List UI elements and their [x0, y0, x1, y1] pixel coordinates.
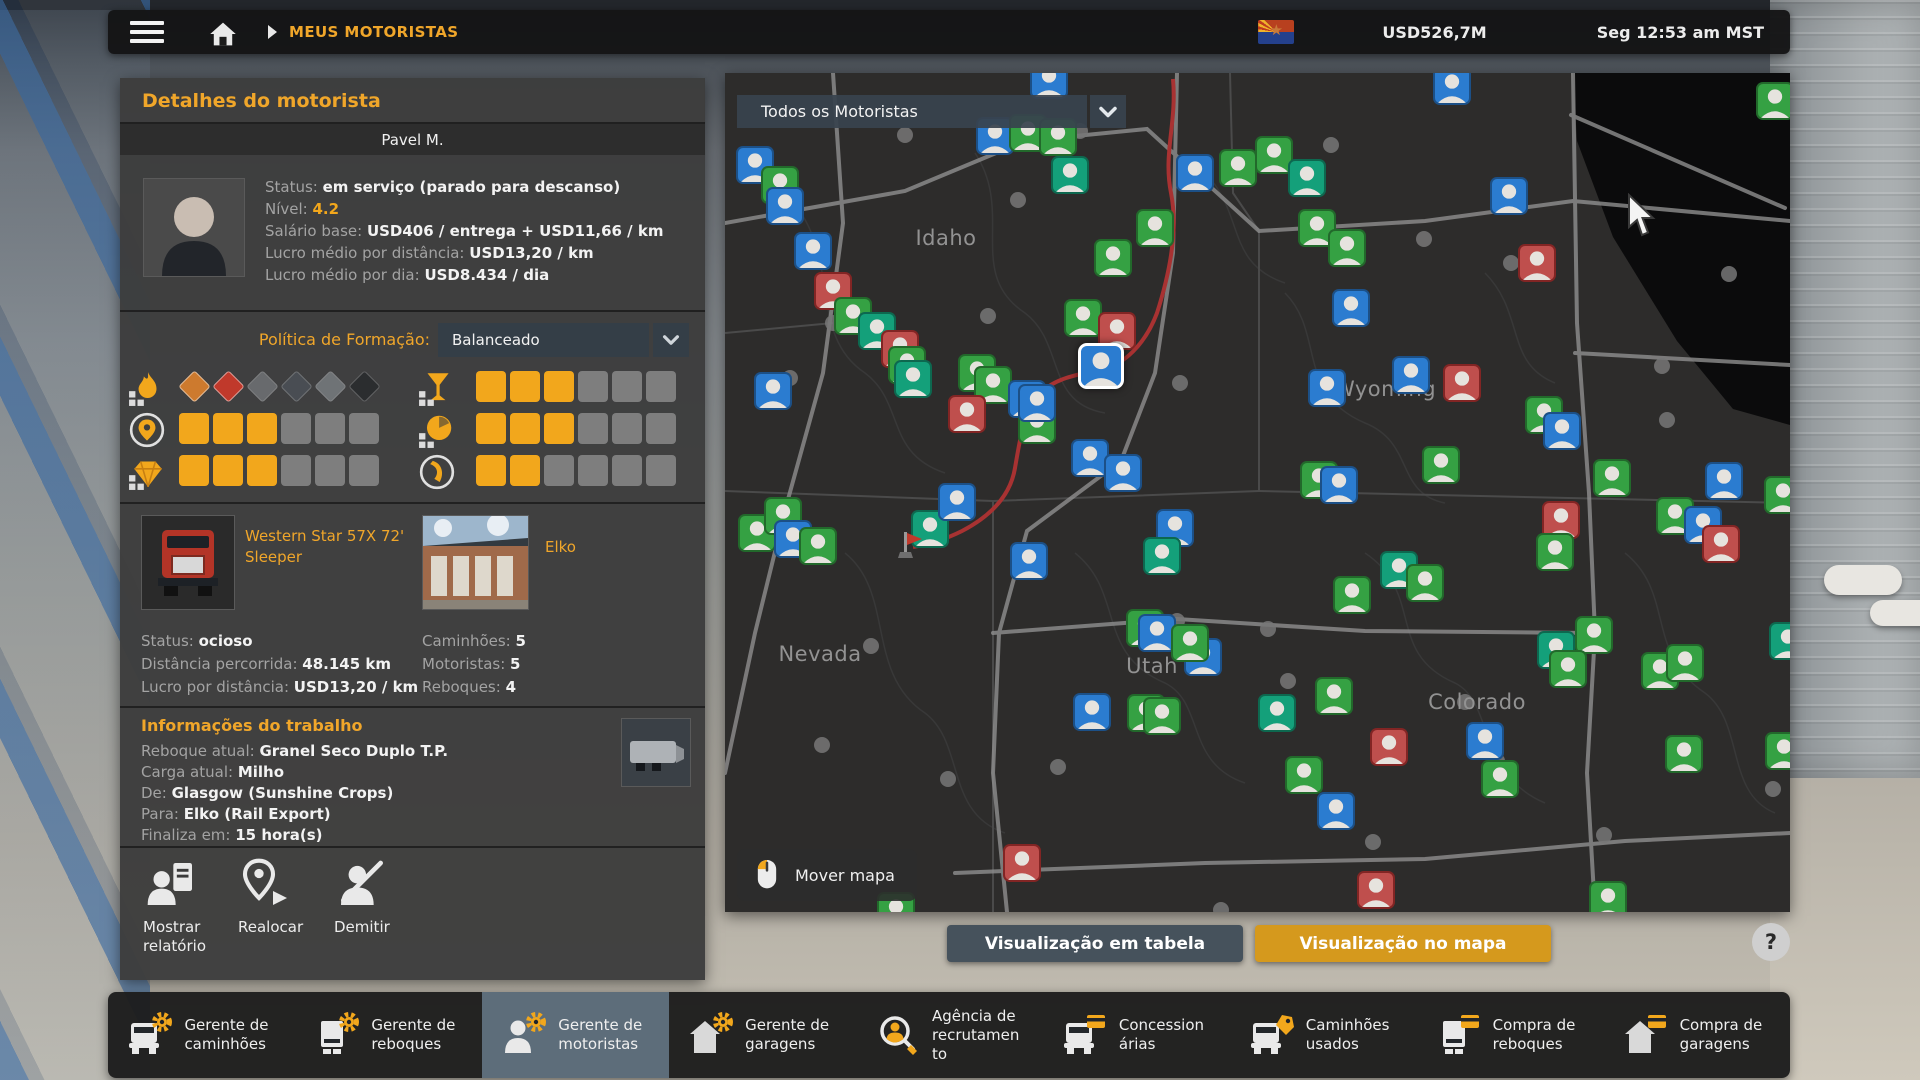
nav-buy-garages[interactable]: Compra de garagens	[1603, 992, 1790, 1078]
driver-marker[interactable]	[1010, 542, 1048, 580]
driver-marker[interactable]	[1549, 650, 1587, 688]
destination-flag-icon	[890, 528, 930, 568]
move-map-label: Mover mapa	[795, 866, 895, 885]
garage-gear-icon	[687, 1011, 735, 1059]
relocate-icon	[238, 856, 294, 912]
info-line: Caminhões: 5	[422, 630, 526, 653]
driver-name: Pavel M.	[120, 124, 705, 155]
state-label: Nevada	[778, 642, 861, 666]
driver-marker[interactable]	[1481, 760, 1519, 798]
skill-square	[476, 371, 506, 402]
nav-truck-manager[interactable]: Gerente de caminhões	[108, 992, 295, 1078]
driver-marker[interactable]	[1702, 525, 1740, 563]
driver-marker[interactable]	[1328, 229, 1366, 267]
report-icon	[143, 856, 199, 912]
skill-square	[578, 413, 608, 444]
driver-marker[interactable]	[1406, 564, 1444, 602]
nav-garage-manager[interactable]: Gerente de garagens	[669, 992, 856, 1078]
skill-square	[476, 413, 506, 444]
driver-marker[interactable]	[1219, 149, 1257, 187]
skill-square	[612, 371, 642, 402]
skill-square	[510, 371, 540, 402]
roof-girder	[0, 0, 1920, 10]
driver-marker[interactable]	[1433, 73, 1471, 105]
info-line: Nível: 4.2	[265, 198, 695, 220]
skill-square	[578, 455, 608, 486]
driver-marker[interactable]	[1064, 299, 1102, 337]
driver-marker[interactable]	[938, 483, 976, 521]
driver-marker[interactable]	[1443, 364, 1481, 402]
panel-title: Detalhes do motorista	[142, 90, 381, 112]
clock-skill-icon	[418, 411, 456, 449]
driver-marker[interactable]	[766, 187, 804, 225]
home-icon[interactable]	[206, 17, 240, 47]
skill-level-bar	[476, 413, 676, 444]
info-line: Reboque atual: Granel Seco Duplo T.P.	[141, 741, 448, 762]
glass-skill-icon	[418, 369, 456, 407]
info-line: Motoristas: 5	[422, 653, 526, 676]
relocate-button[interactable]: Realocar	[238, 856, 330, 937]
recruitment-magnifier-icon	[874, 1011, 922, 1059]
driver-photo	[143, 178, 245, 277]
skill-square	[646, 371, 676, 402]
truck-gear-icon	[126, 1011, 174, 1059]
used-truck-tag-icon	[1248, 1011, 1296, 1059]
dismiss-button[interactable]: Demitir	[334, 856, 426, 937]
selected-driver-marker[interactable]	[1078, 343, 1124, 389]
info-line: Status: ocioso	[141, 630, 418, 653]
skill-level-bar	[476, 455, 676, 486]
driver-marker[interactable]	[1543, 412, 1581, 450]
job-info-list: Reboque atual: Granel Seco Duplo T.P.Car…	[141, 741, 448, 846]
info-line: Distância percorrida: 48.145 km	[141, 653, 418, 676]
bottom-nav-bar: Gerente de caminhões Gerente de reboques…	[108, 992, 1790, 1078]
driver-marker[interactable]	[1666, 644, 1704, 682]
info-line: Lucro por distância: USD13,20 / km	[141, 676, 418, 699]
training-policy-select[interactable]: Balanceado	[438, 323, 649, 357]
nav-buy-trailers[interactable]: Compra de reboques	[1416, 992, 1603, 1078]
driver-marker[interactable]	[1665, 735, 1703, 773]
driver-marker[interactable]	[1593, 459, 1631, 497]
filter-chevron-down-icon[interactable]	[1090, 95, 1126, 128]
driver-marker[interactable]	[1258, 694, 1296, 732]
skill-square	[646, 413, 676, 444]
nav-trailer-manager[interactable]: Gerente de reboques	[295, 992, 482, 1078]
driver-marker[interactable]	[1333, 576, 1371, 614]
info-line: Carga atual: Milho	[141, 762, 448, 783]
driver-marker[interactable]	[1094, 239, 1132, 277]
driver-marker[interactable]	[754, 372, 792, 410]
driver-marker[interactable]	[1143, 697, 1181, 735]
money-balance: USD526,7M	[1382, 23, 1486, 42]
action-label: Mostrar relatório	[143, 918, 229, 956]
driver-marker[interactable]	[1764, 476, 1790, 514]
driver-marker[interactable]	[1756, 82, 1790, 120]
breadcrumb: MEUS MOTORISTAS	[289, 23, 458, 41]
mouse-cursor	[1625, 193, 1659, 239]
driver-marker[interactable]	[894, 360, 932, 398]
driver-marker[interactable]	[1392, 356, 1430, 394]
dismiss-icon	[334, 856, 390, 912]
driver-marker[interactable]	[1357, 871, 1395, 909]
driver-marker[interactable]	[1490, 177, 1528, 215]
info-line: Salário base: USD406 / entrega + USD11,6…	[265, 220, 695, 242]
driver-marker[interactable]	[1370, 728, 1408, 766]
driver-marker[interactable]	[1288, 159, 1326, 197]
driver-marker[interactable]	[1308, 369, 1346, 407]
policy-label: Política de Formação:	[120, 330, 430, 349]
skill-square	[544, 455, 574, 486]
driver-details-panel: Detalhes do motorista Pavel M. Status: e…	[120, 78, 705, 980]
driver-marker[interactable]	[1765, 732, 1790, 770]
driver-marker[interactable]	[1518, 244, 1556, 282]
driver-marker[interactable]	[1136, 209, 1174, 247]
truck-name: Western Star 57X 72' Sleeper	[245, 526, 415, 568]
driver-marker[interactable]	[1769, 622, 1790, 660]
action-label: Demitir	[334, 918, 420, 937]
table-view-button[interactable]: Visualização em tabela	[947, 925, 1243, 962]
map-view-button[interactable]: Visualização no mapa	[1255, 925, 1551, 962]
skill-square	[544, 371, 574, 402]
trailer-thumbnail[interactable]	[621, 718, 691, 787]
driver-marker[interactable]	[1320, 466, 1358, 504]
garage-name: Elko	[545, 538, 576, 556]
policy-chevron-down-icon[interactable]	[653, 323, 689, 357]
skill-row	[120, 371, 705, 405]
info-line: Para: Elko (Rail Export)	[141, 804, 448, 825]
info-line: Lucro médio por dia: USD8.434 / dia	[265, 264, 695, 286]
driver-marker[interactable]	[1575, 616, 1613, 654]
pedal-skill-icon	[418, 453, 456, 491]
help-button[interactable]: ?	[1752, 923, 1790, 961]
nav-dealerships[interactable]: Concessionárias	[1042, 992, 1229, 1078]
game-time: Seg 12:53 am MST	[1597, 23, 1764, 42]
driver-manager-window: MEUS MOTORISTAS USD526,7M Seg 12:53 am M…	[108, 10, 1798, 1078]
driver-marker[interactable]	[1143, 537, 1181, 575]
top-bar: MEUS MOTORISTAS USD526,7M Seg 12:53 am M…	[108, 10, 1790, 54]
mouse-icon	[747, 855, 787, 895]
driver-marker[interactable]	[1018, 384, 1056, 422]
driver-marker[interactable]	[1285, 756, 1323, 794]
nav-recruitment-agency[interactable]: Agência de recrutamento	[856, 992, 1043, 1078]
driver-marker[interactable]	[1176, 154, 1214, 192]
truck-stats-list: Status: ociosoDistância percorrida: 48.1…	[141, 630, 418, 699]
nav-used-trucks[interactable]: Caminhões usados	[1229, 992, 1416, 1078]
dealer-card-icon	[1061, 1011, 1109, 1059]
skill-square	[476, 455, 506, 486]
driver-marker[interactable]	[794, 232, 832, 270]
driver-marker[interactable]	[1589, 881, 1627, 912]
job-info-title: Informações do trabalho	[141, 716, 363, 735]
skill-square	[612, 413, 642, 444]
state-label: Colorado	[1428, 690, 1526, 714]
driver-marker[interactable]	[1422, 446, 1460, 484]
skill-square	[544, 413, 574, 444]
state-label: Utah	[1126, 654, 1178, 678]
driver-marker[interactable]	[1466, 722, 1504, 760]
white-tank	[1824, 565, 1902, 595]
info-line: De: Glasgow (Sunshine Crops)	[141, 783, 448, 804]
skill-square	[510, 413, 540, 444]
driver-marker[interactable]	[1332, 289, 1370, 327]
info-line: Lucro médio por distância: USD13,20 / km	[265, 242, 695, 264]
skill-row	[120, 413, 705, 447]
nav-driver-manager[interactable]: Gerente de motoristas	[482, 992, 669, 1078]
garage-stats-list: Caminhões: 5Motoristas: 5Reboques: 4	[422, 630, 526, 699]
driver-marker[interactable]	[948, 395, 986, 433]
driver-marker[interactable]	[1317, 792, 1355, 830]
driver-marker[interactable]	[1003, 844, 1041, 882]
skill-row	[120, 455, 705, 489]
white-tank	[1870, 600, 1920, 626]
info-line: Finaliza em: 15 hora(s)	[141, 825, 448, 846]
driver-map[interactable]: IdahoWyomingNevadaUtahColorado Todos os …	[725, 73, 1790, 912]
garage-thumbnail[interactable]	[422, 515, 529, 610]
info-line: Reboques: 4	[422, 676, 526, 699]
info-line: Status: em serviço (parado para descanso…	[265, 176, 695, 198]
skill-level-bar	[476, 371, 676, 402]
trailer-card-icon	[1435, 1011, 1483, 1059]
driver-marker[interactable]	[1104, 454, 1142, 492]
garage-card-icon	[1622, 1011, 1670, 1059]
arizona-flag-icon	[1258, 20, 1294, 44]
driver-info-list: Status: em serviço (parado para descanso…	[265, 176, 695, 286]
driver-marker[interactable]	[1315, 677, 1353, 715]
driver-gear-icon	[500, 1011, 548, 1059]
show-report-button[interactable]: Mostrar relatório	[143, 856, 235, 956]
driver-filter-select[interactable]: Todos os Motoristas	[737, 95, 1087, 128]
driver-marker[interactable]	[1171, 624, 1209, 662]
state-label: Idaho	[915, 226, 976, 250]
driver-marker[interactable]	[799, 527, 837, 565]
driver-marker[interactable]	[1073, 693, 1111, 731]
skill-square	[646, 455, 676, 486]
action-label: Realocar	[238, 918, 324, 937]
skill-square	[510, 455, 540, 486]
truck-thumbnail[interactable]	[141, 515, 235, 610]
skill-square	[612, 455, 642, 486]
skill-square	[578, 371, 608, 402]
trailer-gear-icon	[313, 1011, 361, 1059]
driver-marker[interactable]	[1705, 462, 1743, 500]
move-map-hint: Mover mapa	[737, 849, 917, 901]
menu-icon[interactable]	[130, 21, 164, 43]
driver-marker[interactable]	[1051, 156, 1089, 194]
breadcrumb-chevron-icon	[268, 25, 277, 39]
driver-marker[interactable]	[1536, 533, 1574, 571]
